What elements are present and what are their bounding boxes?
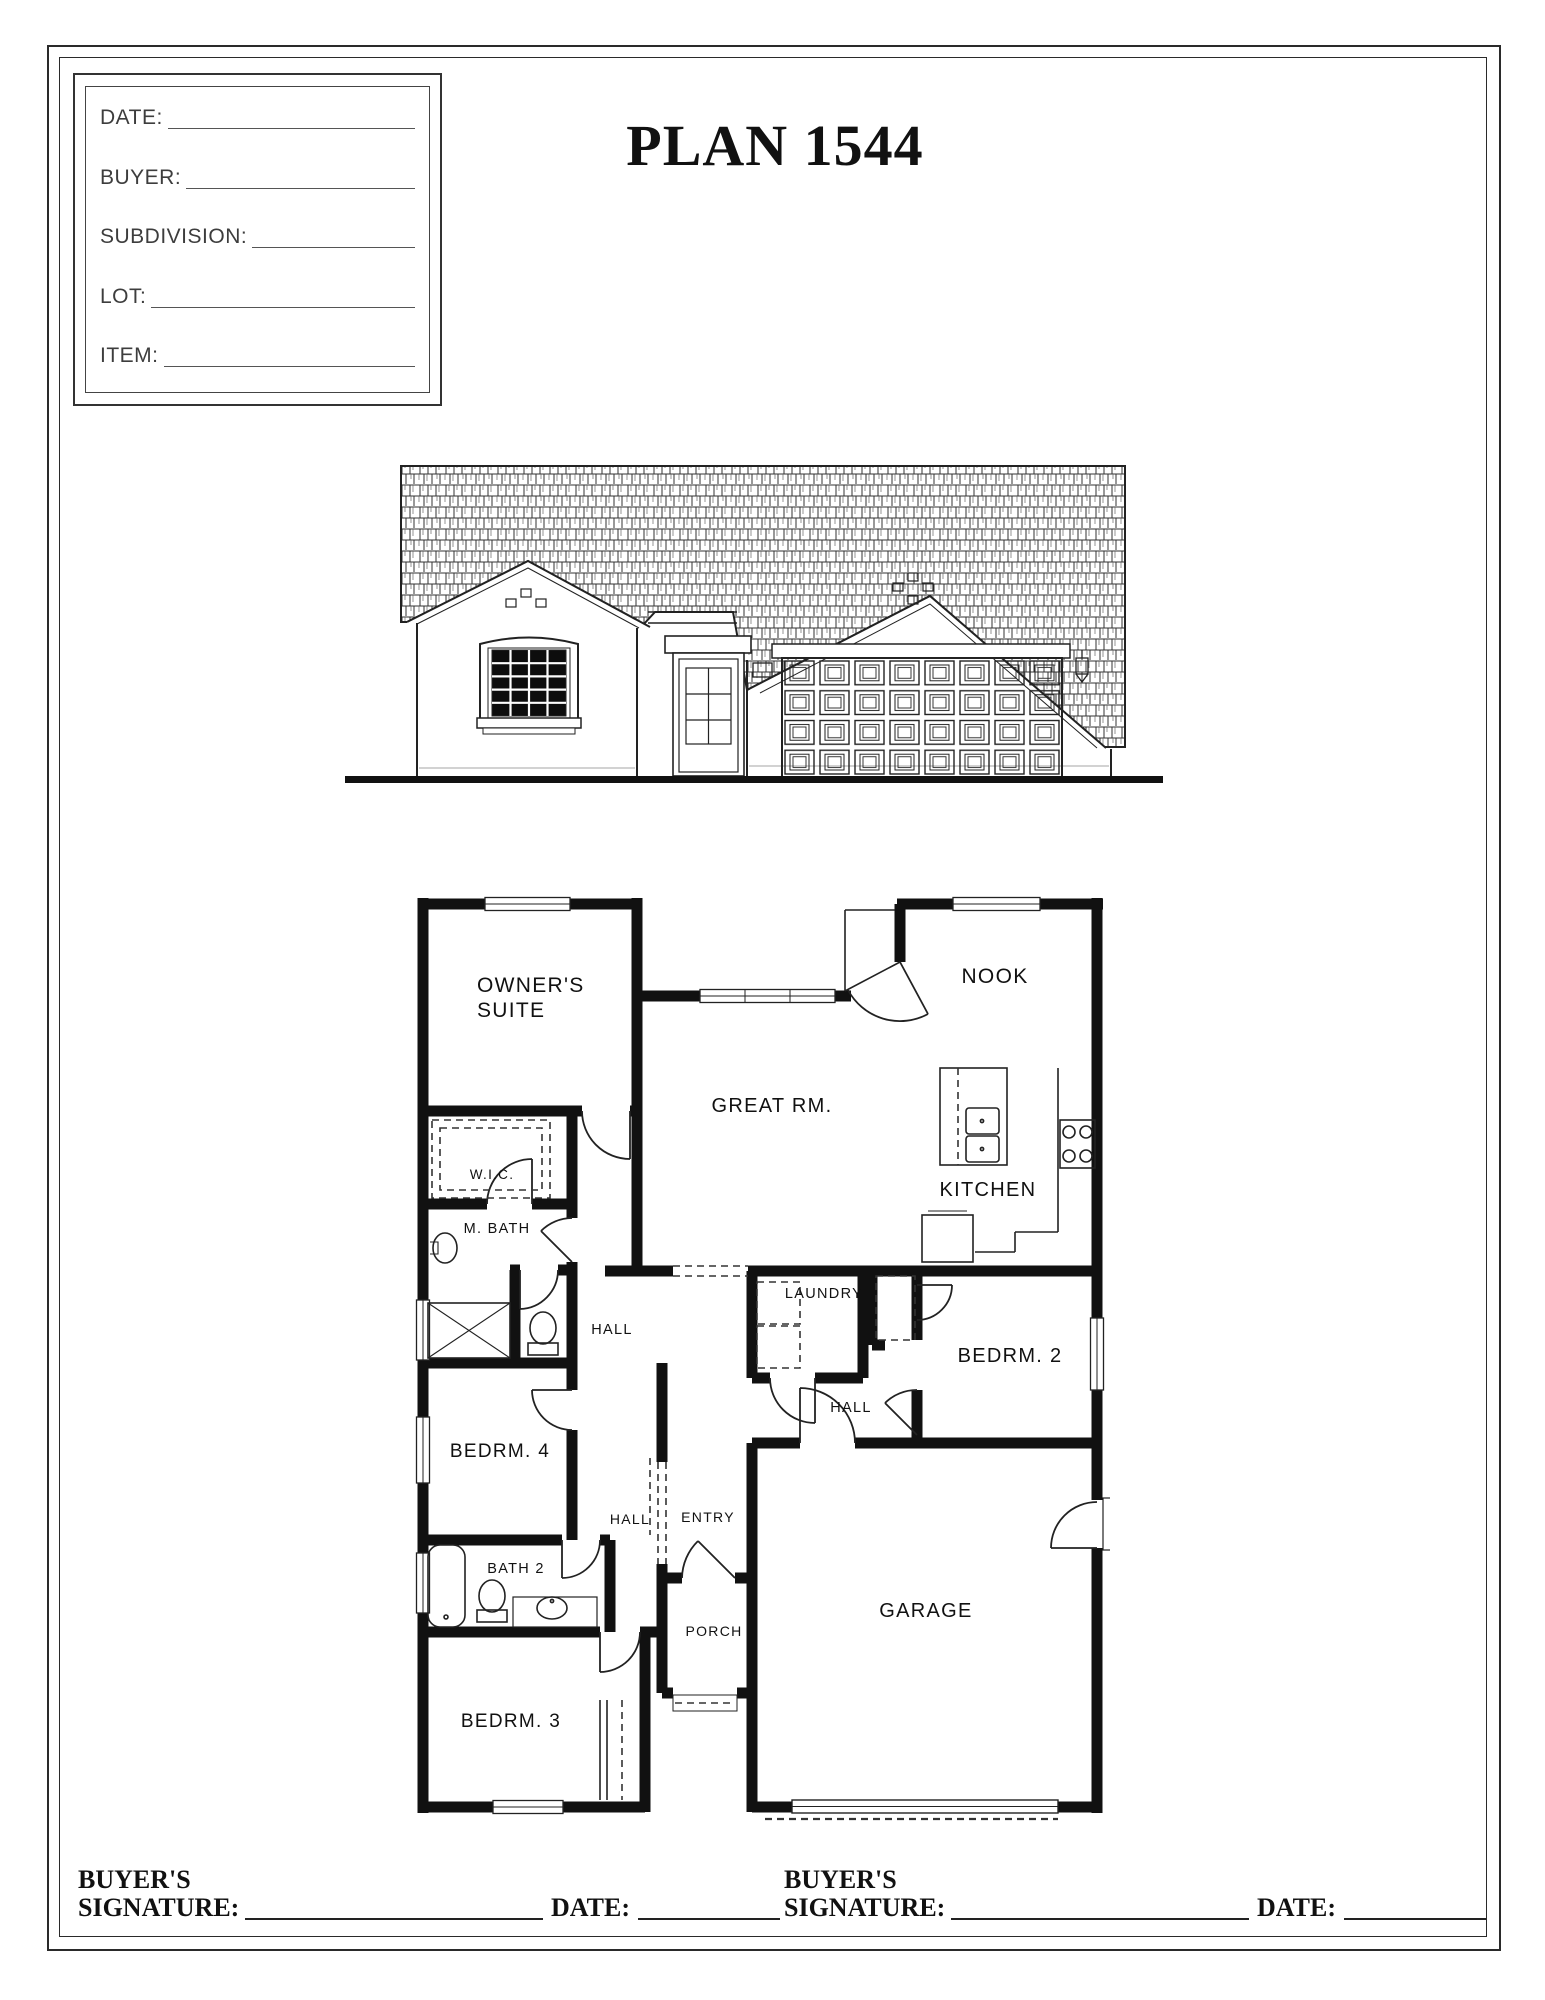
buyer-signature-line-2[interactable] bbox=[951, 1908, 1249, 1920]
buyer-signature-block-2: BUYER'S SIGNATURE: DATE: bbox=[784, 1866, 1490, 1922]
buyer-signature-line-1[interactable] bbox=[245, 1908, 543, 1920]
date-label: DATE: bbox=[100, 106, 163, 129]
subdivision-blank-line[interactable] bbox=[252, 224, 415, 248]
room-label-hall-lower: HALL bbox=[610, 1511, 650, 1527]
lot-label: LOT: bbox=[100, 285, 146, 308]
date-line-2[interactable] bbox=[1344, 1908, 1486, 1920]
room-label-laundry: LAUNDRY bbox=[785, 1286, 863, 1302]
room-label-entry: ENTRY bbox=[681, 1509, 735, 1525]
order-form-box: DATE: BUYER: SUBDIVISION: LOT: ITEM: bbox=[73, 73, 442, 406]
buyer-signature-label-2: BUYER'S SIGNATURE: bbox=[784, 1866, 945, 1922]
garage-door-plan bbox=[792, 1800, 1058, 1813]
room-label-owner-suite-2: SUITE bbox=[477, 999, 545, 1022]
room-label-hall-upper: HALL bbox=[591, 1322, 632, 1338]
date-label-2: DATE: bbox=[1257, 1894, 1336, 1922]
room-label-porch: PORCH bbox=[685, 1623, 742, 1639]
room-label-bedrm3: BEDRM. 3 bbox=[461, 1711, 561, 1732]
buyer-signature-block-1: BUYER'S SIGNATURE: DATE: bbox=[78, 1866, 784, 1922]
room-label-wic: W.I.C. bbox=[470, 1167, 515, 1182]
form-row-subdivision: SUBDIVISION: bbox=[100, 224, 415, 248]
order-form-box-inner: DATE: BUYER: SUBDIVISION: LOT: ITEM: bbox=[85, 86, 430, 393]
signature-row: BUYER'S SIGNATURE: DATE: BUYER'S SIGNATU… bbox=[78, 1866, 1490, 1922]
ground-line bbox=[345, 776, 1163, 783]
item-label: ITEM: bbox=[100, 344, 159, 367]
room-label-garage: GARAGE bbox=[879, 1600, 972, 1622]
form-row-buyer: BUYER: bbox=[100, 165, 415, 189]
room-label-m-bath: M. BATH bbox=[464, 1221, 531, 1237]
room-label-nook: NOOK bbox=[961, 965, 1028, 988]
lot-blank-line[interactable] bbox=[151, 284, 415, 308]
form-row-date: DATE: bbox=[100, 105, 415, 129]
room-label-bedrm2: BEDRM. 2 bbox=[958, 1345, 1063, 1367]
room-label-kitchen: KITCHEN bbox=[940, 1179, 1037, 1201]
garage-door-elevation bbox=[772, 644, 1070, 777]
elevation-drawing bbox=[340, 440, 1170, 795]
form-row-item: ITEM: bbox=[100, 343, 415, 367]
floor-plan-drawing: OWNER'S SUITE NOOK GREAT RM. KITCHEN W.I… bbox=[400, 878, 1110, 1853]
plan-sheet: DATE: BUYER: SUBDIVISION: LOT: ITEM: PLA… bbox=[0, 0, 1545, 2000]
front-door-elevation bbox=[665, 636, 751, 776]
item-blank-line[interactable] bbox=[164, 343, 416, 367]
room-label-great-rm: GREAT RM. bbox=[712, 1095, 833, 1117]
form-row-lot: LOT: bbox=[100, 284, 415, 308]
date-line-1[interactable] bbox=[638, 1908, 780, 1920]
buyer-signature-label-1: BUYER'S SIGNATURE: bbox=[78, 1866, 239, 1922]
room-label-owner-suite-1: OWNER'S bbox=[477, 974, 585, 997]
buyer-label: BUYER: bbox=[100, 166, 181, 189]
subdivision-label: SUBDIVISION: bbox=[100, 225, 247, 248]
room-label-bedrm4: BEDRM. 4 bbox=[450, 1441, 550, 1462]
date-blank-line[interactable] bbox=[168, 105, 415, 129]
buyer-blank-line[interactable] bbox=[186, 165, 415, 189]
room-label-hall-mid: HALL bbox=[830, 1400, 871, 1416]
page-title: PLAN 1544 bbox=[495, 112, 1055, 179]
room-label-bath2: BATH 2 bbox=[487, 1561, 545, 1577]
elevation-window bbox=[477, 638, 581, 735]
date-label-1: DATE: bbox=[551, 1894, 630, 1922]
